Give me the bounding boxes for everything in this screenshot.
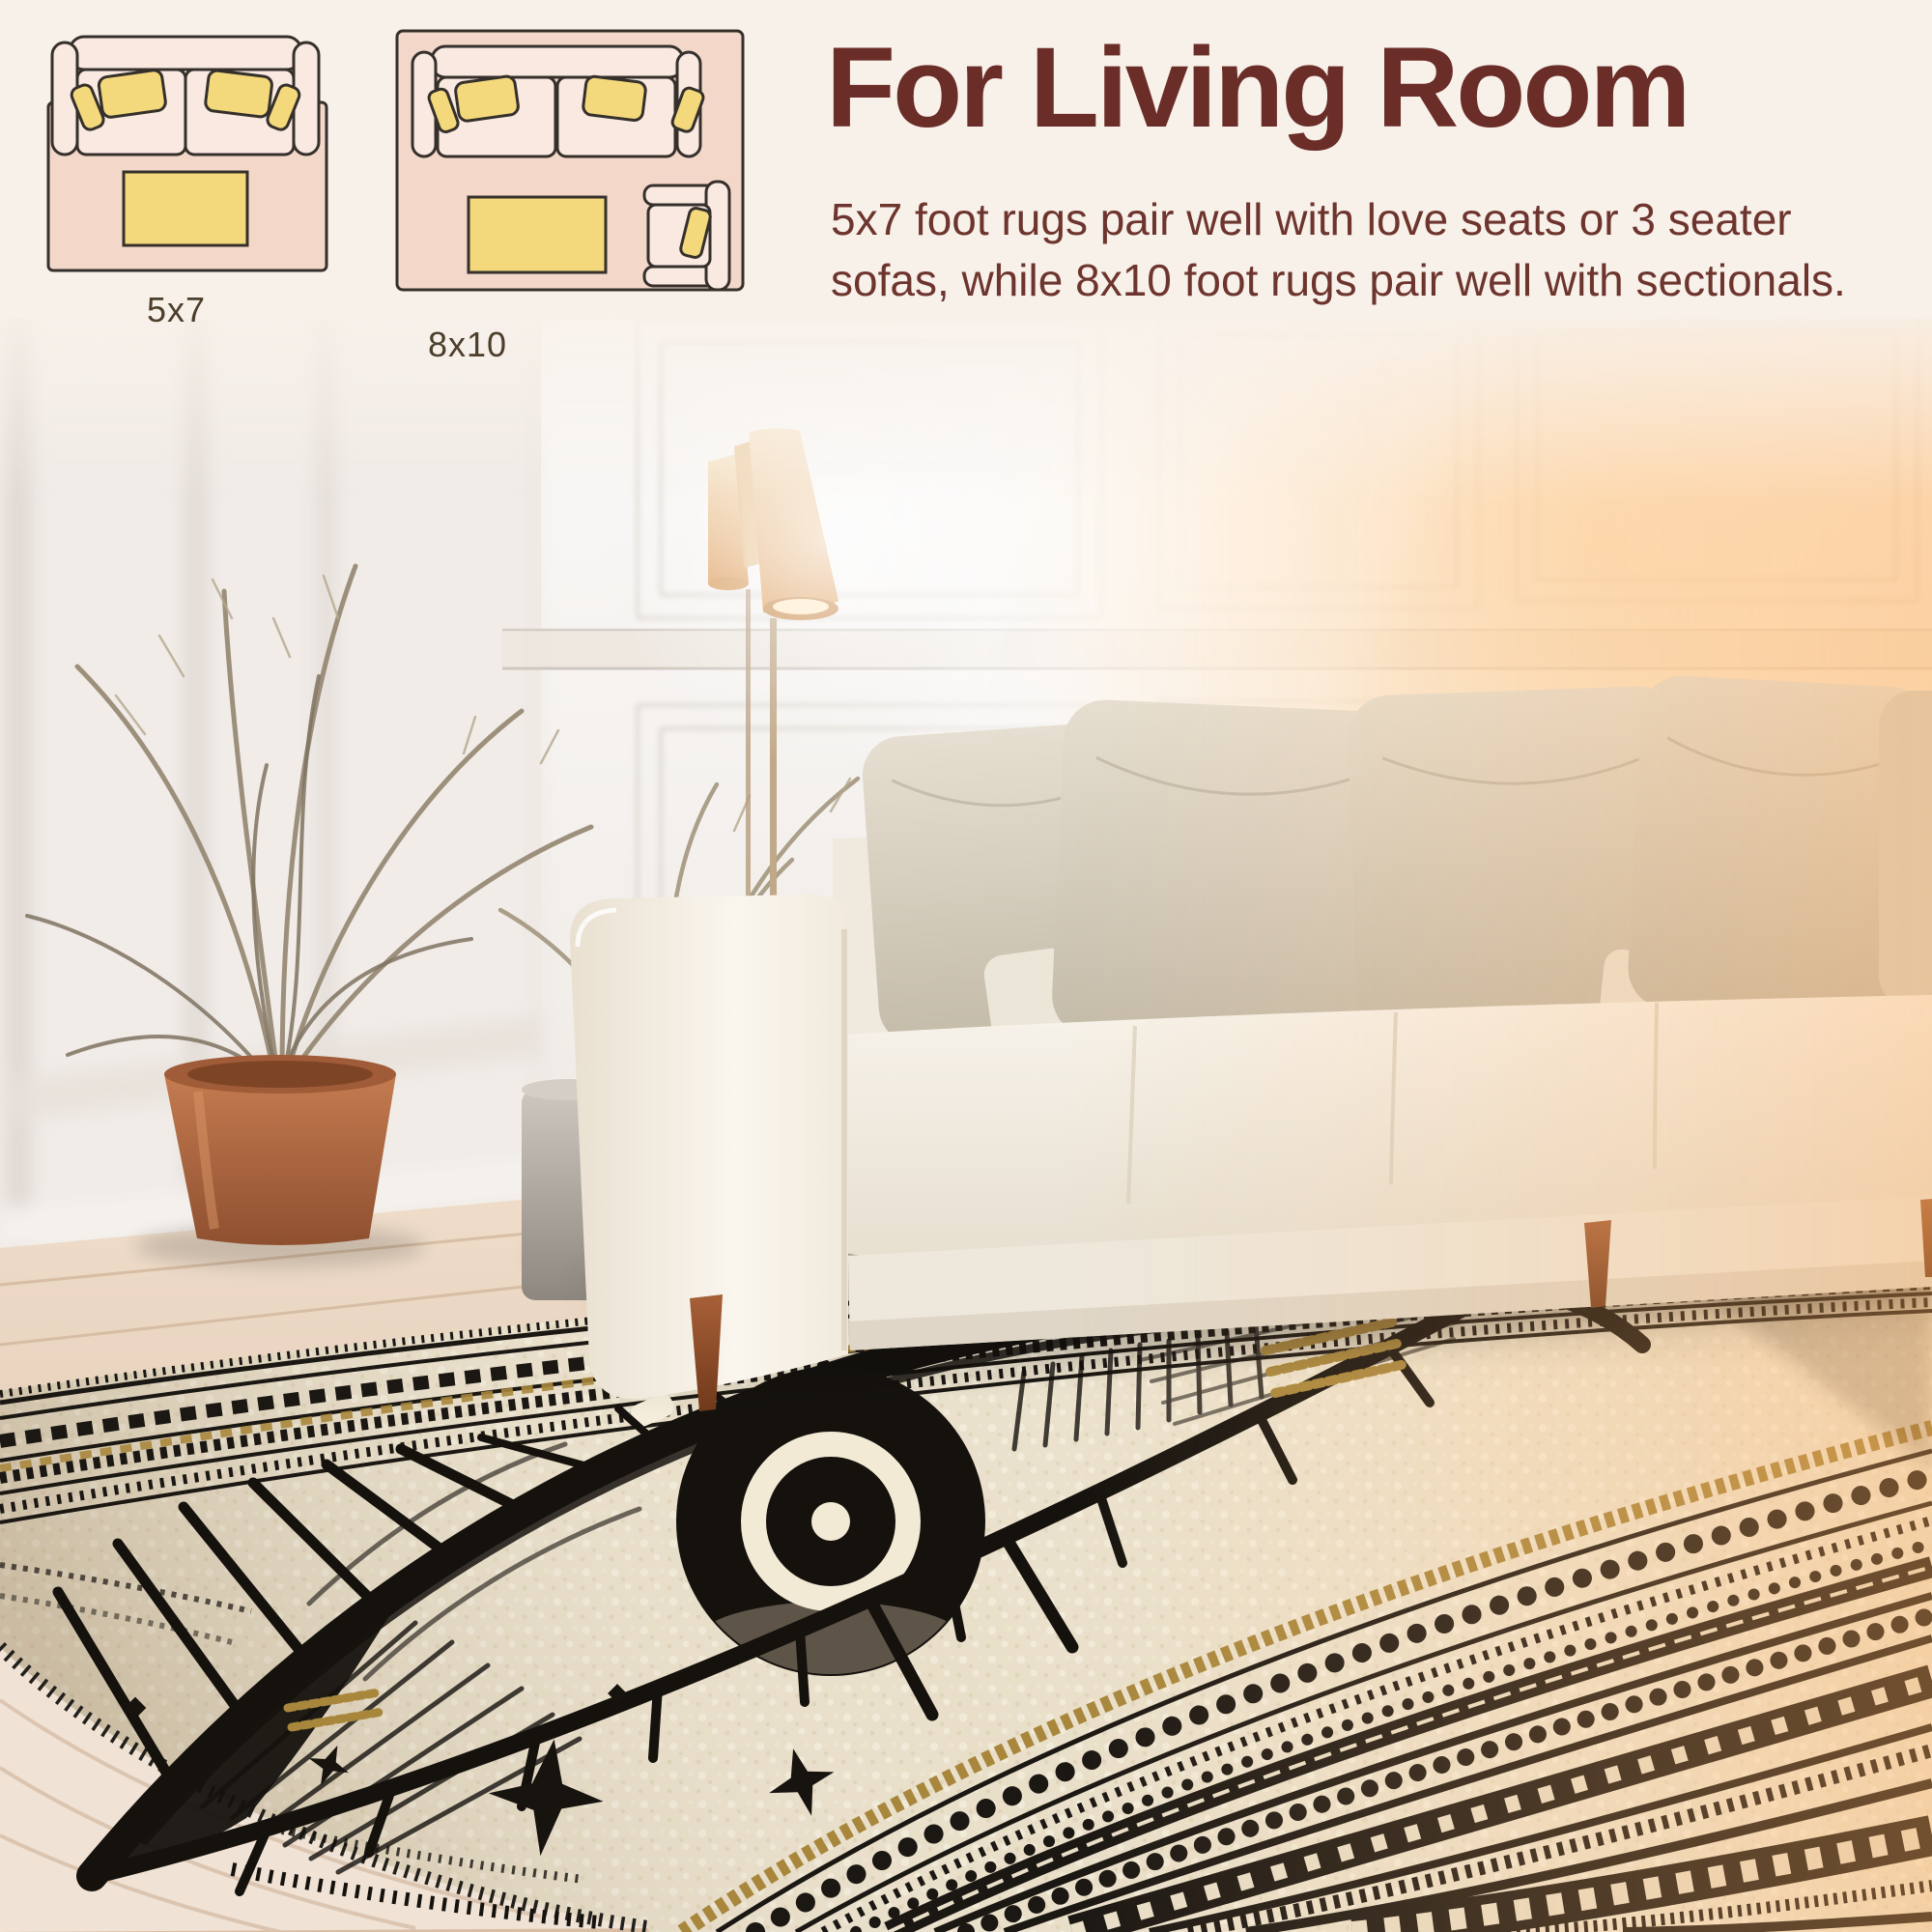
diagram-coffee-table: [124, 172, 247, 245]
size-diagram-8x10: 8x10: [391, 25, 749, 365]
diagram-coffee-table: [469, 197, 606, 272]
page-description: 5x7 foot rugs pair well with love seats …: [831, 189, 1898, 312]
page-title: For Living Room: [826, 29, 1918, 149]
size-label-8x10: 8x10: [391, 325, 749, 365]
size-diagram-5x7: 5x7: [41, 27, 340, 330]
warm-tint-overlay: [1063, 280, 1932, 1932]
diagram-8x10-drawing: [391, 25, 749, 315]
diagram-5x7-drawing: [41, 27, 340, 280]
product-infographic: 5x7: [0, 0, 1932, 1932]
size-label-5x7: 5x7: [41, 290, 340, 330]
terracotta-pot: [164, 1055, 396, 1245]
header: 5x7: [0, 0, 1932, 406]
